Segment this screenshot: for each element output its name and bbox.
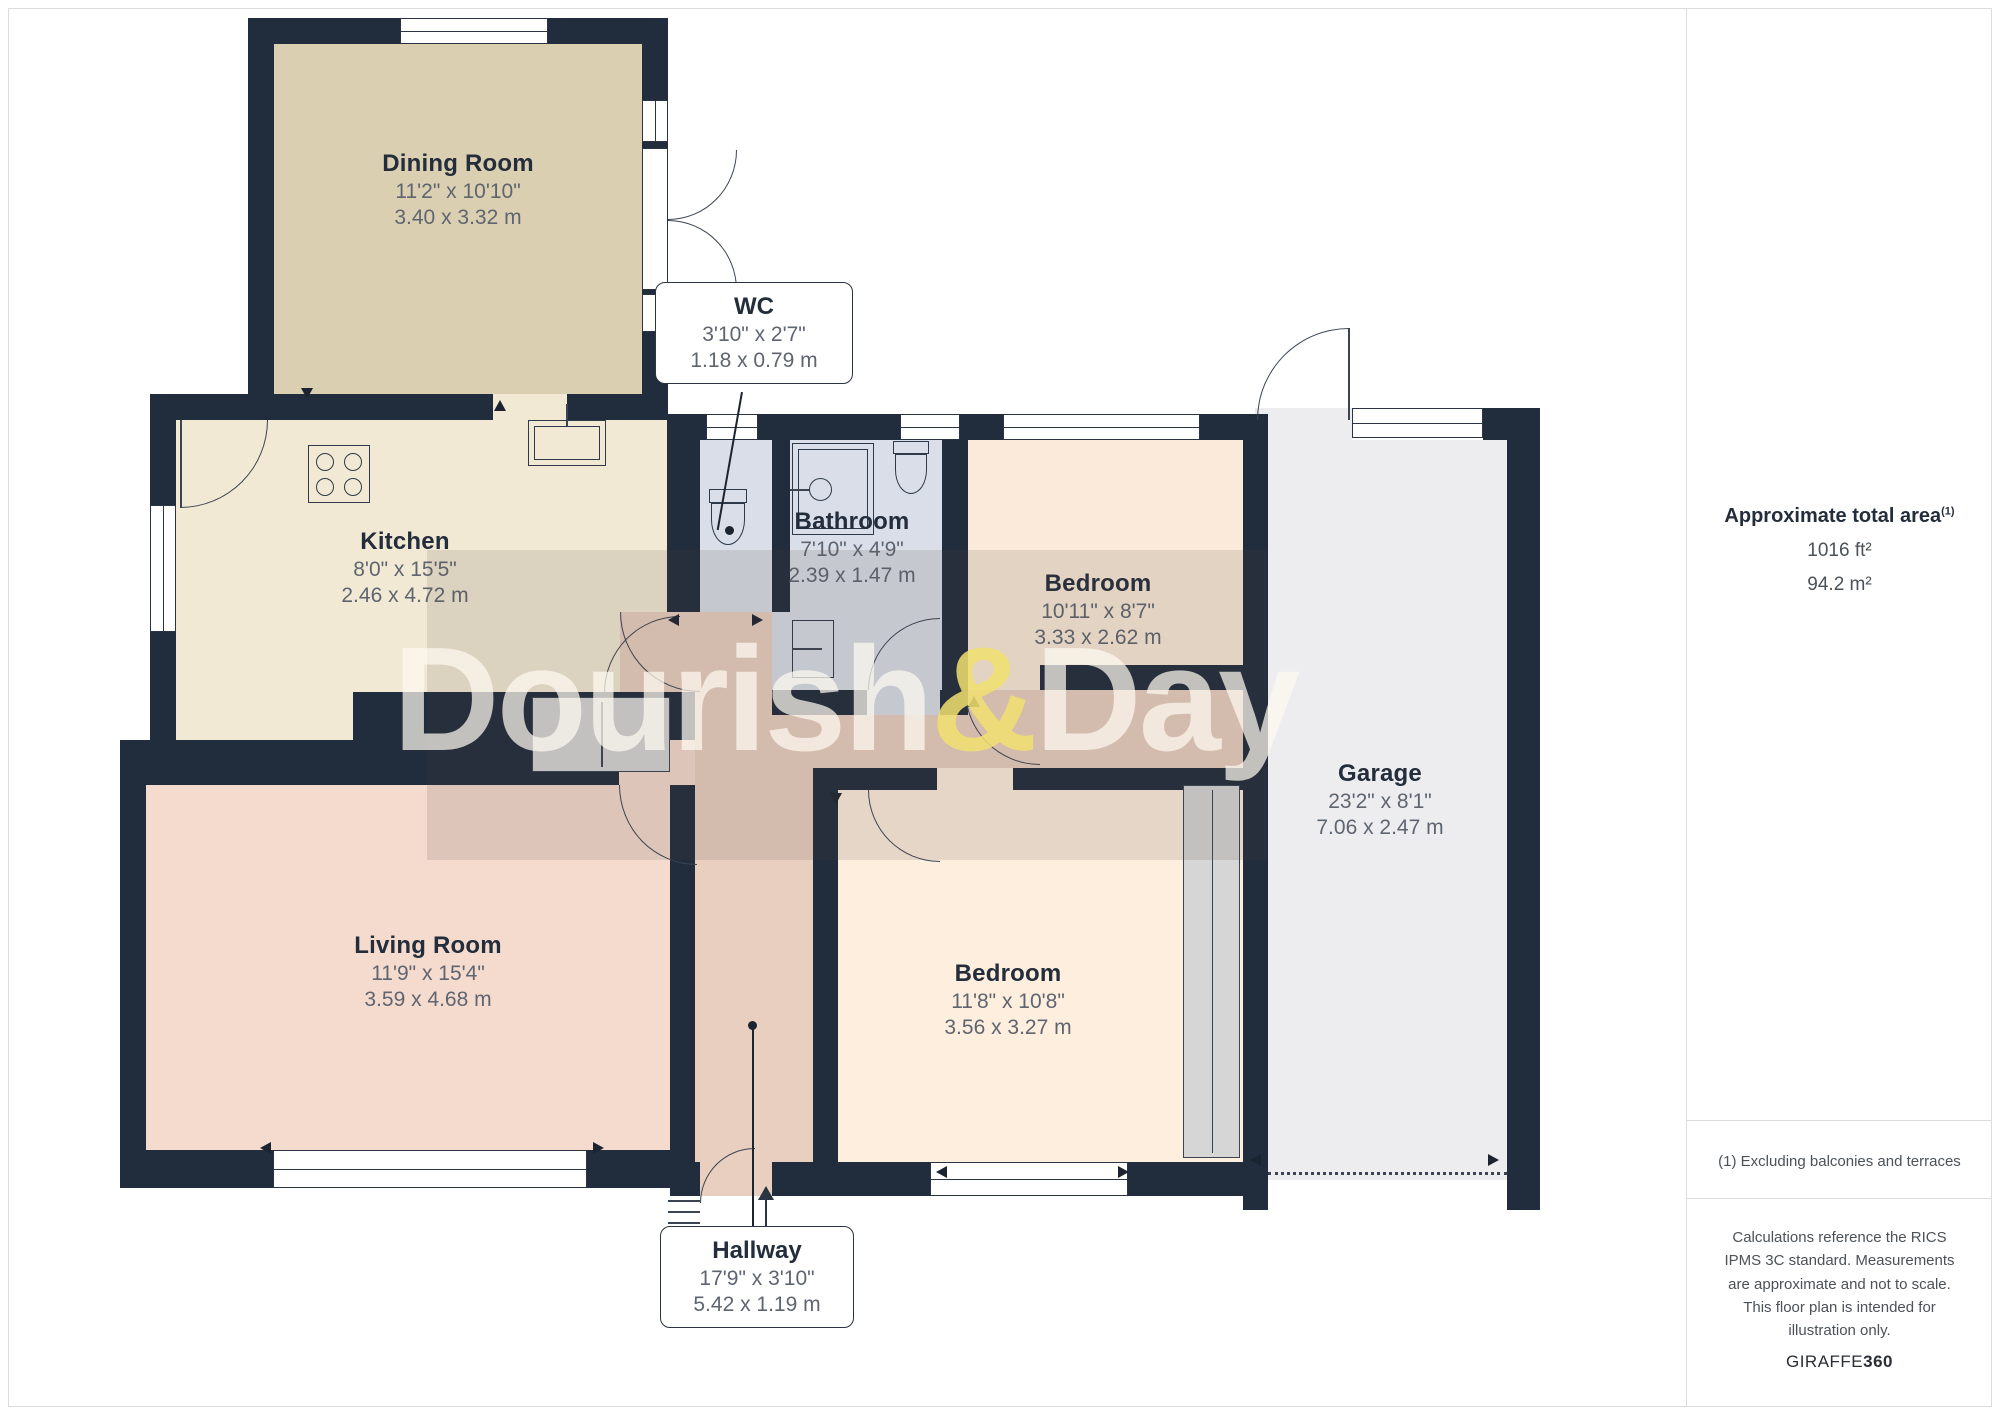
leader-line bbox=[752, 1028, 754, 1228]
total-area-superscript: (1) bbox=[1941, 505, 1954, 517]
room-label-kitchen: Kitchen 8'0" x 15'5" 2.46 x 4.72 m bbox=[341, 528, 468, 608]
toilet-icon bbox=[709, 489, 747, 503]
wall-segment bbox=[642, 18, 668, 100]
stove-burner-icon bbox=[316, 453, 334, 471]
brand-name: GIRAFFE bbox=[1786, 1352, 1863, 1371]
wall-segment bbox=[968, 414, 1003, 440]
leader-dot bbox=[725, 526, 734, 535]
room-dims-imperial: 10'11" x 8'7" bbox=[1034, 600, 1161, 624]
step-line bbox=[668, 1222, 700, 1224]
sliding-door-panel bbox=[532, 697, 670, 772]
wall-segment bbox=[248, 18, 274, 420]
room-dims-imperial: 3'10" x 2'7" bbox=[670, 323, 838, 347]
door-leaf bbox=[180, 420, 182, 508]
wall-segment bbox=[1483, 408, 1540, 440]
sidebar-divider bbox=[1687, 1120, 1992, 1121]
room-label-dining: Dining Room 11'2" x 10'10" 3.40 x 3.32 m bbox=[382, 150, 534, 230]
opening-flag bbox=[968, 696, 980, 707]
room-label-hallway: Hallway 17'9" x 3'10" 5.42 x 1.19 m bbox=[660, 1226, 854, 1328]
room-dims-imperial: 23'2" x 8'1" bbox=[1316, 790, 1443, 814]
room-name: Bedroom bbox=[1034, 570, 1161, 598]
wall-segment bbox=[1243, 690, 1268, 1180]
built-in-cupboard bbox=[1183, 785, 1240, 1158]
room-dims-imperial: 7'10" x 4'9" bbox=[788, 538, 915, 562]
floorplan-page: Dining Room 11'2" x 10'10" 3.40 x 3.32 m… bbox=[0, 0, 2000, 1415]
wall-segment bbox=[567, 394, 668, 420]
wall-segment bbox=[758, 414, 900, 440]
wall-segment bbox=[670, 1162, 700, 1196]
room-name: Bedroom bbox=[944, 960, 1071, 988]
room-name: Dining Room bbox=[382, 150, 534, 178]
wall-segment bbox=[667, 414, 706, 440]
room-dims-metric: 3.33 x 2.62 m bbox=[1034, 626, 1161, 650]
stove-burner-icon bbox=[316, 478, 334, 496]
kitchen-sink-basin-icon bbox=[534, 426, 600, 460]
wall-segment bbox=[1128, 1162, 1268, 1196]
room-dims-metric: 3.59 x 4.68 m bbox=[354, 988, 502, 1012]
wall-segment bbox=[940, 690, 968, 715]
room-label-garage: Garage 23'2" x 8'1" 7.06 x 2.47 m bbox=[1316, 760, 1443, 840]
step-line bbox=[668, 1200, 700, 1202]
wall-segment bbox=[1507, 440, 1540, 1210]
room-dims-imperial: 17'9" x 3'10" bbox=[675, 1267, 839, 1291]
total-area-label: Approximate total area(1) bbox=[1724, 505, 1954, 527]
french-door-opening bbox=[642, 148, 668, 290]
opening-flag bbox=[1250, 1154, 1261, 1166]
window bbox=[1352, 408, 1483, 438]
wall-segment bbox=[815, 768, 937, 790]
wall-segment bbox=[667, 414, 700, 612]
room-label-bedroom-2: Bedroom 11'8" x 10'8" 3.56 x 3.27 m bbox=[944, 960, 1071, 1040]
room-label-bathroom: Bathroom 7'10" x 4'9" 2.39 x 1.47 m bbox=[788, 508, 915, 588]
wall-segment bbox=[960, 414, 968, 440]
garage-door-dashed-line bbox=[1268, 1172, 1507, 1175]
room-label-living: Living Room 11'9" x 15'4" 3.59 x 4.68 m bbox=[354, 932, 502, 1012]
room-dims-metric: 1.18 x 0.79 m bbox=[670, 349, 838, 373]
opening-flag bbox=[752, 614, 763, 626]
room-name: Garage bbox=[1316, 760, 1443, 788]
bathroom-sink-icon bbox=[809, 478, 832, 501]
wall-segment bbox=[150, 394, 274, 420]
kitchen-sink-tap-icon bbox=[566, 404, 568, 426]
leader-dot bbox=[748, 1021, 757, 1030]
disclaimer-text: Calculations reference the RICS IPMS 3C … bbox=[1713, 1226, 1966, 1342]
room-dims-imperial: 11'9" x 15'4" bbox=[354, 962, 502, 986]
window bbox=[400, 18, 548, 44]
opening-flag bbox=[830, 793, 842, 804]
step-line bbox=[668, 1211, 700, 1213]
door-arc bbox=[1257, 328, 1349, 420]
window bbox=[150, 505, 176, 632]
window bbox=[1003, 414, 1200, 440]
total-area-m: 94.2 m² bbox=[1687, 574, 1992, 596]
room-name: Kitchen bbox=[341, 528, 468, 556]
room-dims-metric: 3.40 x 3.32 m bbox=[382, 206, 534, 230]
opening-flag bbox=[593, 1142, 604, 1154]
wall-segment bbox=[838, 1162, 930, 1196]
total-area-text: Approximate total area bbox=[1724, 505, 1941, 527]
door-leaf bbox=[1348, 328, 1350, 420]
vanity-line-icon bbox=[792, 648, 822, 650]
stove-burner-icon bbox=[344, 478, 362, 496]
room-dims-imperial: 8'0" x 15'5" bbox=[341, 558, 468, 582]
stove-burner-icon bbox=[344, 453, 362, 471]
window bbox=[273, 1150, 587, 1188]
room-dims-metric: 3.56 x 3.27 m bbox=[944, 1016, 1071, 1040]
wall-segment bbox=[772, 440, 790, 612]
room-label-wc: WC 3'10" x 2'7" 1.18 x 0.79 m bbox=[655, 282, 853, 384]
wall-segment bbox=[942, 440, 968, 690]
sink-pipe-icon bbox=[790, 489, 810, 491]
wall-segment bbox=[772, 690, 867, 715]
window bbox=[900, 414, 960, 440]
room-name: Bathroom bbox=[788, 508, 915, 536]
footnote-text: (1) Excluding balconies and terraces bbox=[1699, 1153, 1980, 1170]
info-sidebar: Approximate total area(1) 1016 ft² 94.2 … bbox=[1686, 8, 1992, 1407]
door-arc bbox=[668, 150, 737, 220]
wall-segment bbox=[120, 1150, 273, 1188]
brand-logo: GIRAFFE360 bbox=[1687, 1352, 1992, 1372]
room-dims-metric: 2.39 x 1.47 m bbox=[788, 564, 915, 588]
opening-flag bbox=[936, 1166, 947, 1178]
toilet-icon bbox=[893, 441, 929, 454]
stove-icon bbox=[308, 445, 370, 503]
room-name: Hallway bbox=[675, 1237, 839, 1265]
window bbox=[706, 414, 758, 440]
total-area-ft: 1016 ft² bbox=[1687, 540, 1992, 562]
brand-suffix: 360 bbox=[1863, 1352, 1893, 1371]
opening-flag bbox=[260, 1142, 271, 1154]
room-dims-metric: 2.46 x 4.72 m bbox=[341, 584, 468, 608]
opening-flag bbox=[668, 614, 679, 626]
total-area-block: Approximate total area(1) 1016 ft² 94.2 … bbox=[1687, 505, 1992, 596]
wall-segment bbox=[1243, 414, 1268, 690]
room-label-bedroom-1: Bedroom 10'11" x 8'7" 3.33 x 2.62 m bbox=[1034, 570, 1161, 650]
opening-flag bbox=[494, 400, 506, 411]
wall-segment bbox=[1040, 665, 1243, 690]
room-dims-imperial: 11'8" x 10'8" bbox=[944, 990, 1071, 1014]
opening-flag bbox=[301, 388, 313, 399]
room-name: WC bbox=[670, 293, 838, 321]
opening-flag bbox=[1118, 1166, 1129, 1178]
entrance-arrow-head bbox=[758, 1186, 774, 1200]
opening-flag bbox=[1488, 1154, 1499, 1166]
room-dims-metric: 5.42 x 1.19 m bbox=[675, 1293, 839, 1317]
wall-segment bbox=[120, 745, 146, 1188]
wall-segment bbox=[813, 768, 838, 1196]
sidebar-divider bbox=[1687, 1198, 1992, 1199]
window bbox=[642, 100, 668, 142]
wall-segment bbox=[248, 394, 493, 420]
room-dims-imperial: 11'2" x 10'10" bbox=[382, 180, 534, 204]
window bbox=[930, 1162, 1128, 1196]
room-name: Living Room bbox=[354, 932, 502, 960]
wall-segment bbox=[1507, 1176, 1540, 1210]
room-dims-metric: 7.06 x 2.47 m bbox=[1316, 816, 1443, 840]
door-arc bbox=[668, 220, 737, 290]
